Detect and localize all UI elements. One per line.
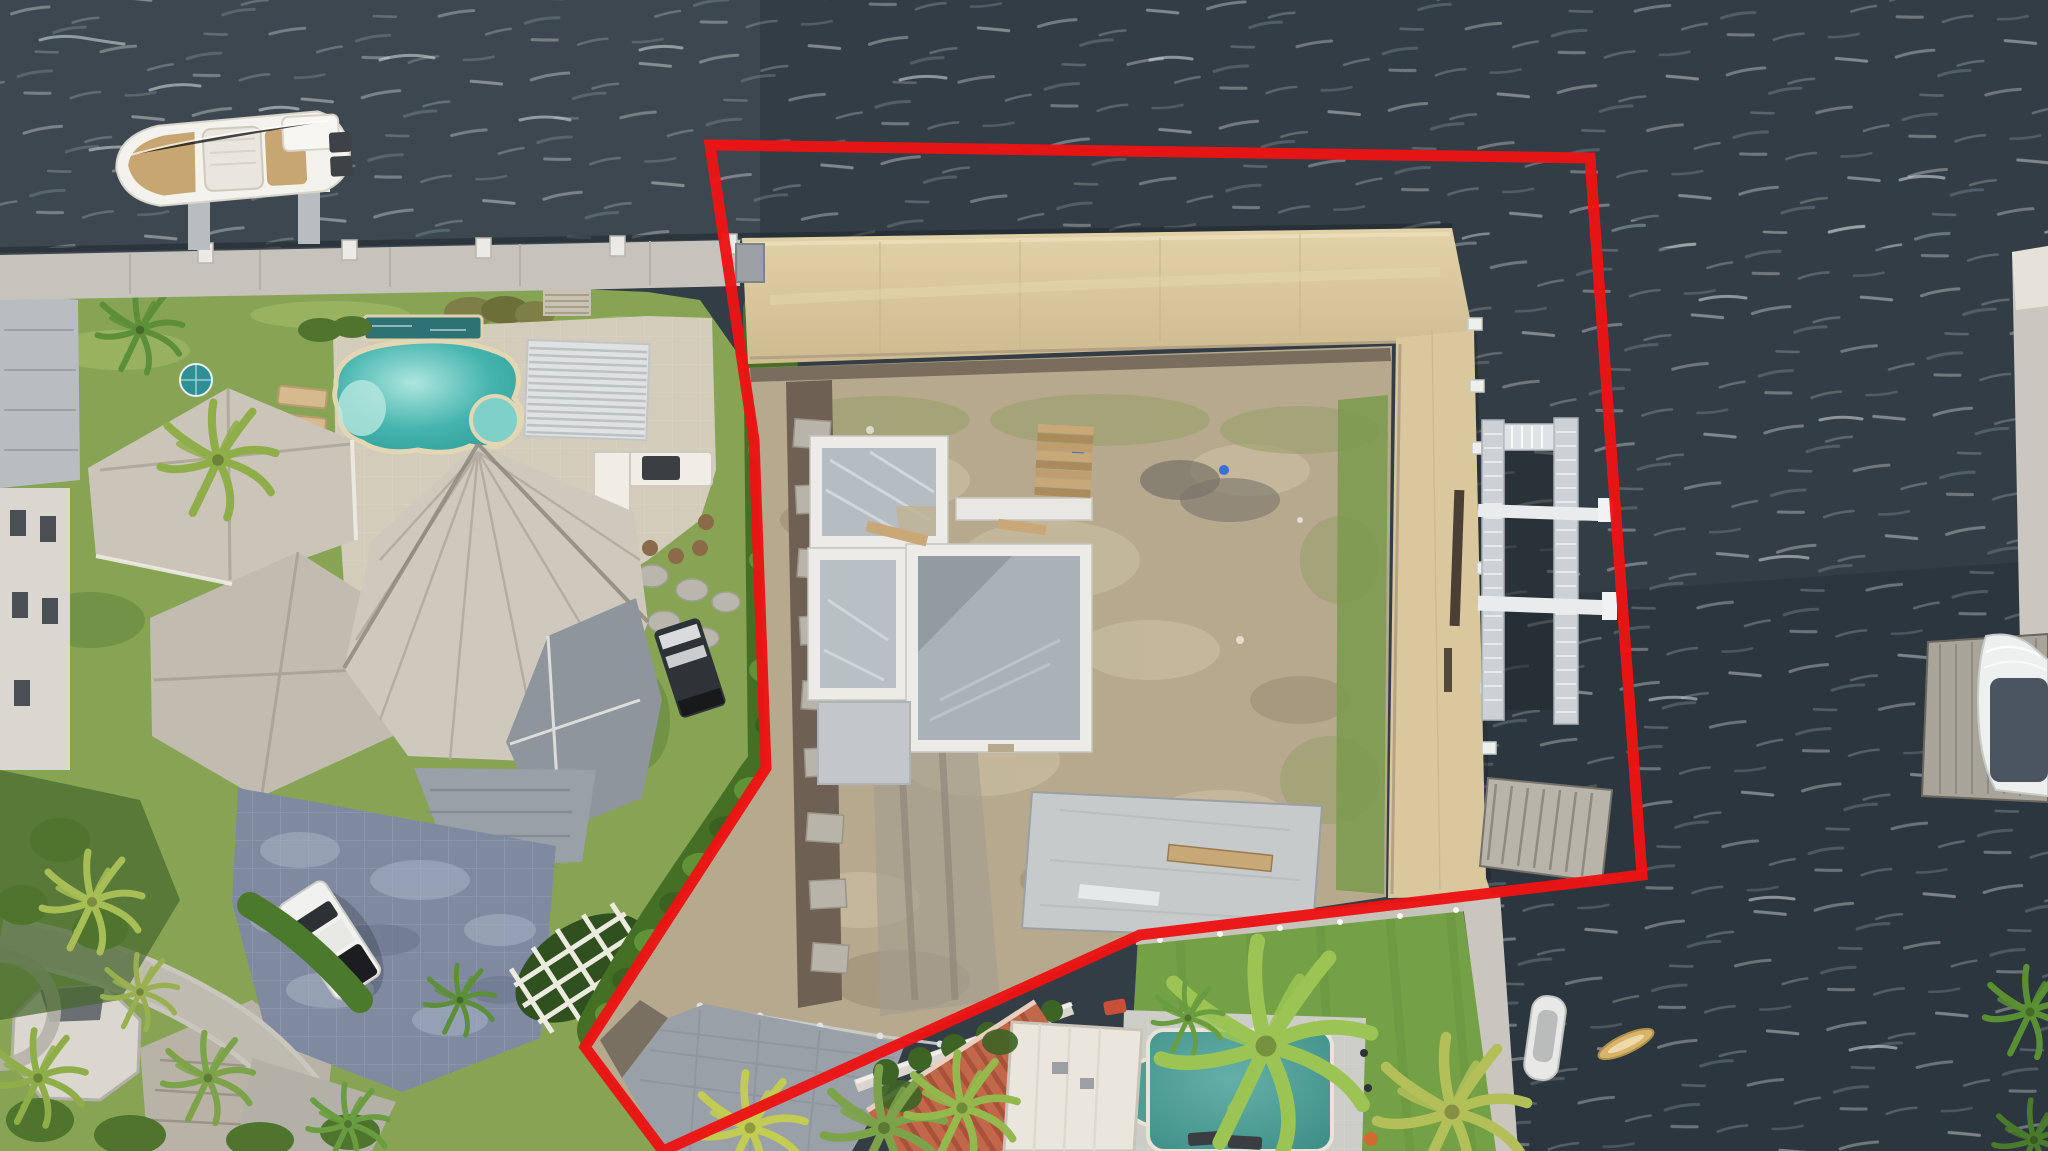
outboard-engine [329, 132, 352, 153]
dark-plank-2 [1444, 648, 1452, 692]
pool-slat-deck [524, 340, 649, 440]
lift-rail-right [1554, 418, 1578, 724]
far-left-neighbor-house [0, 292, 80, 770]
lift-rail-left [1482, 420, 1504, 720]
flat-roof-house [1004, 1022, 1142, 1151]
grill [642, 456, 680, 480]
wood-dock [1480, 778, 1612, 882]
wall-forms [956, 498, 1092, 520]
dock-steps [543, 288, 591, 316]
spa [471, 396, 519, 444]
aerial-photo [0, 0, 2048, 1151]
tanning-shelf [338, 380, 386, 436]
covered-boat [1978, 635, 2048, 797]
left-pool [335, 341, 522, 452]
lap-spa-trough [364, 316, 482, 340]
foundation-room-main [906, 544, 1092, 752]
porch-slab [818, 702, 910, 784]
walkway-grass-strip [1336, 395, 1388, 894]
utility-box [736, 244, 764, 282]
foundation-room-left [808, 548, 908, 700]
